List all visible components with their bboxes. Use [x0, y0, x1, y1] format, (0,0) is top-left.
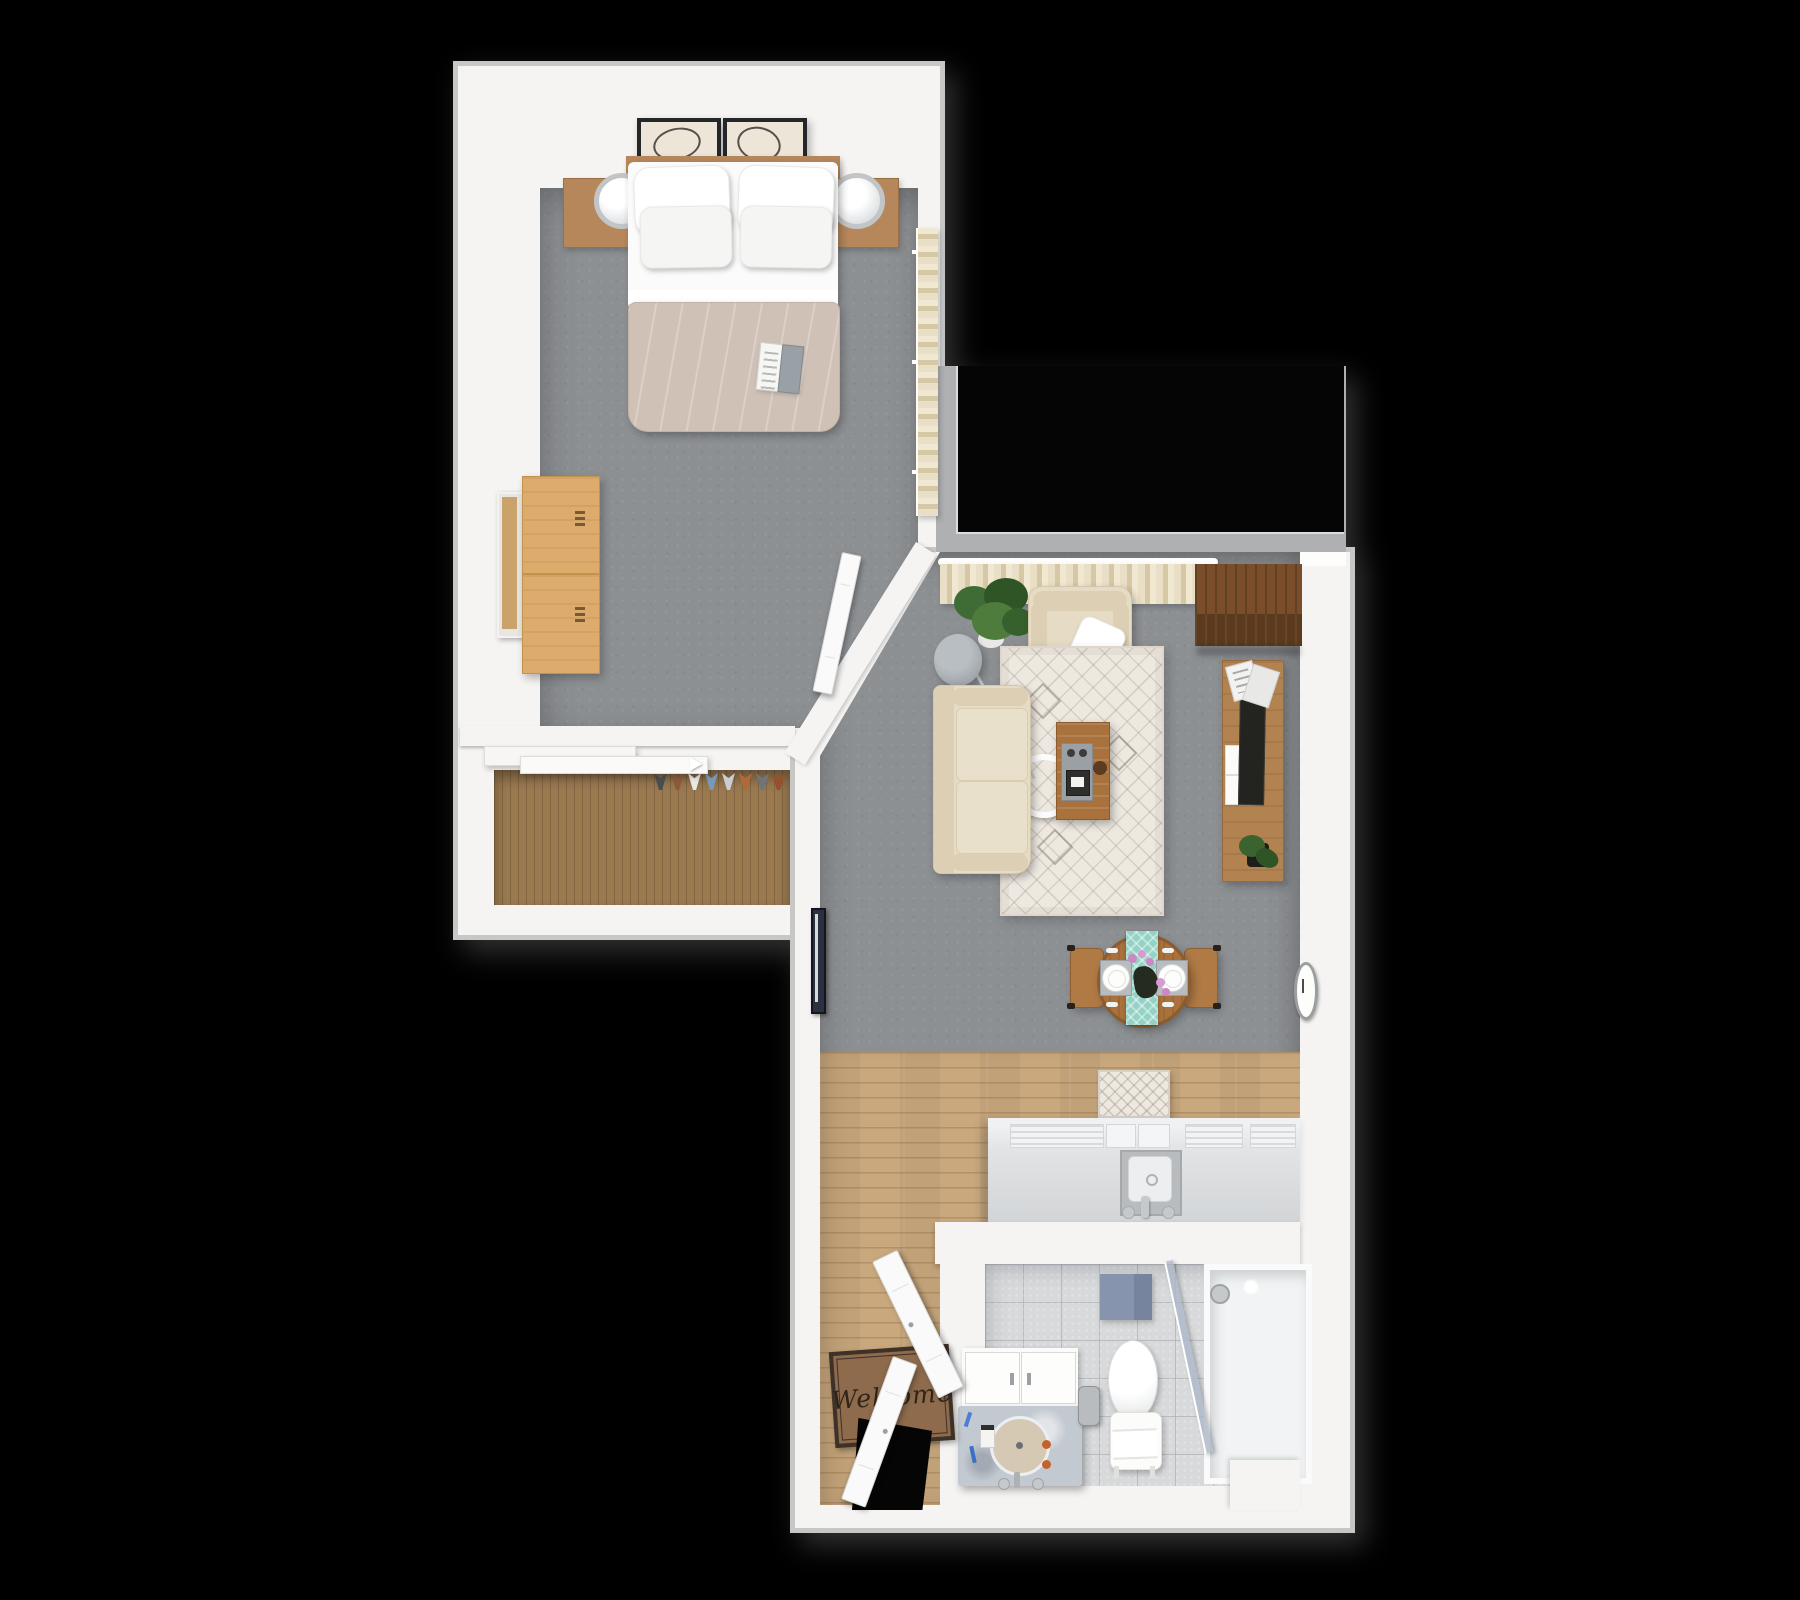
flower-icon	[1162, 988, 1170, 996]
door-handle-icon	[882, 1428, 888, 1434]
mirror-reflection	[502, 497, 517, 629]
shower-head-icon	[1210, 1284, 1230, 1304]
magazine-on-bed	[756, 342, 803, 392]
cutting-board	[1106, 1124, 1136, 1148]
toilet-lid	[1108, 1340, 1158, 1420]
tray-knob-icon	[1079, 749, 1087, 757]
cutlery-icon	[1162, 948, 1174, 953]
closet-sliding-door-2	[520, 756, 708, 774]
tv-screen	[1238, 693, 1266, 805]
curtain-bracket-icon	[912, 470, 918, 474]
corner-cabinet-top	[1195, 564, 1302, 614]
plate-inner	[1108, 970, 1126, 988]
sofa-cushion	[956, 781, 1028, 854]
toilet-leg	[1150, 1466, 1155, 1478]
faucet-handle-icon	[1032, 1478, 1044, 1490]
chair-arm-icon	[1213, 945, 1221, 951]
floor-lamp-shade	[934, 634, 982, 686]
dresser	[522, 476, 600, 674]
tray-knob-icon	[1067, 749, 1075, 757]
apartment: Welcome	[0, 0, 1800, 1600]
sofa-back	[934, 686, 954, 873]
trash-can	[1078, 1386, 1100, 1426]
closet-wall	[460, 726, 795, 746]
bed-duvet	[628, 302, 840, 432]
coaster-icon	[1093, 761, 1107, 775]
vanity-door	[1021, 1352, 1076, 1404]
cutlery-icon	[1106, 1002, 1118, 1007]
curtain-bracket-icon	[912, 250, 918, 254]
corner-cabinet-front	[1195, 614, 1302, 646]
sofa	[933, 685, 1031, 874]
coffee-table	[1056, 722, 1110, 820]
wall-art-highlight	[815, 914, 818, 1002]
flower-icon	[1146, 958, 1154, 966]
sofa-arm	[952, 688, 1028, 706]
sliding-door-handle-icon	[690, 757, 702, 771]
vanity-handle-icon	[1027, 1373, 1031, 1385]
cooktop-grate-icon	[1185, 1124, 1243, 1148]
faucet-spout-icon	[1014, 1472, 1020, 1488]
cosmetic-jar-icon	[1042, 1440, 1051, 1449]
vanity-counter	[958, 1406, 1082, 1486]
bathroom-corner-ledge	[1230, 1460, 1300, 1510]
vanity-sink-basin	[990, 1416, 1050, 1476]
toothbrush-icon	[969, 1446, 976, 1463]
curtain-bracket-icon	[912, 360, 918, 364]
tray-box	[1066, 770, 1090, 796]
vanity-handle-icon	[1010, 1373, 1014, 1385]
door-handle-icon	[908, 1321, 915, 1328]
dresser-handle-icon	[575, 607, 585, 625]
kitchen-bath-wall	[935, 1222, 1300, 1264]
wall-art-narrow	[811, 908, 826, 1014]
bedroom-curtain	[916, 228, 938, 516]
table-tray	[1061, 743, 1093, 801]
vanity-door	[965, 1352, 1020, 1404]
cutting-board	[1138, 1124, 1170, 1148]
plate-inner	[1164, 970, 1182, 988]
wall-clock-icon	[1294, 962, 1318, 1020]
toilet-base	[1110, 1412, 1162, 1470]
cutlery-icon	[1162, 1002, 1174, 1007]
bed-pillow	[739, 205, 832, 269]
rug-diamond-icon	[1037, 829, 1074, 866]
toilet-towel	[1112, 1428, 1157, 1460]
dispenser-cap	[981, 1425, 994, 1430]
plate-icon	[1102, 964, 1130, 992]
sofa-cushion	[956, 708, 1028, 781]
media-console	[1222, 660, 1284, 882]
cooktop-grate-icon	[1250, 1124, 1296, 1148]
faucet-spout-icon	[1141, 1196, 1149, 1218]
dresser-divider	[523, 573, 599, 575]
floor-plan: Welcome	[0, 0, 1800, 1600]
towel-fold	[1134, 1274, 1152, 1320]
clock-hand-icon	[1302, 979, 1304, 993]
cooktop-grate-icon	[1010, 1124, 1104, 1148]
faucet-handle-icon	[1162, 1206, 1175, 1219]
sink-drain-icon	[1146, 1174, 1158, 1186]
tray-card	[1071, 777, 1084, 787]
dresser-handle-icon	[575, 511, 585, 529]
chair-arm-icon	[1067, 1003, 1075, 1009]
cosmetic-jar-icon	[1042, 1460, 1051, 1469]
flower-icon	[1128, 954, 1137, 963]
window-void	[956, 366, 1344, 534]
faucet-handle-icon	[998, 1478, 1010, 1490]
kitchen-mat	[1098, 1070, 1170, 1118]
sink-drain-icon	[1016, 1442, 1023, 1449]
bed-pillow	[639, 205, 732, 269]
toilet-leg	[1114, 1466, 1119, 1478]
chair-arm-icon	[1213, 1003, 1221, 1009]
sink-basin	[1128, 1156, 1172, 1202]
bath-towel	[1100, 1274, 1152, 1320]
closet-floor	[494, 770, 790, 905]
flower-icon	[1156, 978, 1165, 987]
cutlery-icon	[1106, 948, 1118, 953]
sofa-arm	[952, 853, 1028, 871]
soap-dispenser-icon	[980, 1428, 995, 1448]
cabinet-shadow	[1197, 646, 1300, 656]
shower-light-icon	[1244, 1280, 1258, 1294]
toothbrush-icon	[964, 1412, 972, 1428]
flower-icon	[1138, 950, 1146, 958]
chair-arm-icon	[1067, 945, 1075, 951]
vanity-cabinet	[962, 1348, 1078, 1406]
faucet-handle-icon	[1122, 1206, 1135, 1219]
